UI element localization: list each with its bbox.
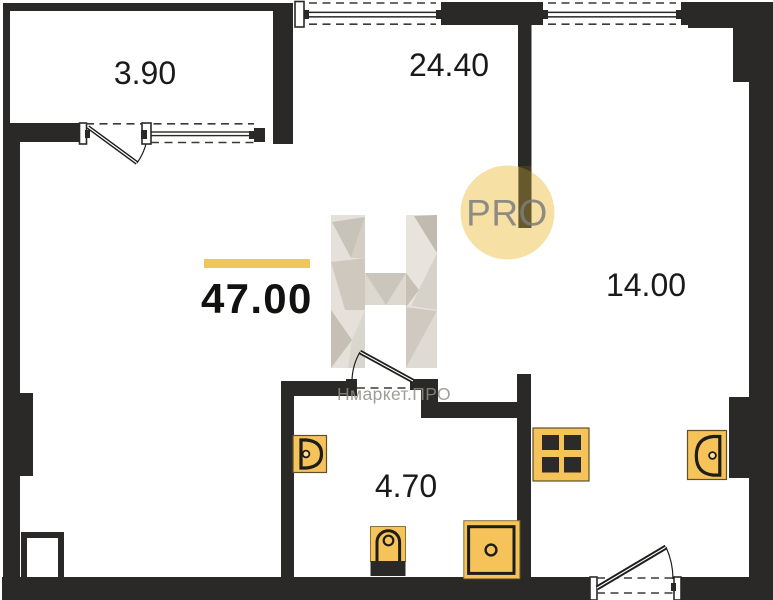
svg-text:3.90: 3.90 (114, 55, 176, 91)
svg-text:PRO: PRO (466, 193, 548, 234)
svg-text:24.40: 24.40 (409, 47, 489, 83)
svg-text:Нмаркет.ПРО: Нмаркет.ПРО (337, 384, 451, 404)
svg-text:47.00: 47.00 (201, 275, 313, 322)
svg-text:14.00: 14.00 (606, 267, 686, 303)
svg-text:4.70: 4.70 (375, 468, 437, 504)
